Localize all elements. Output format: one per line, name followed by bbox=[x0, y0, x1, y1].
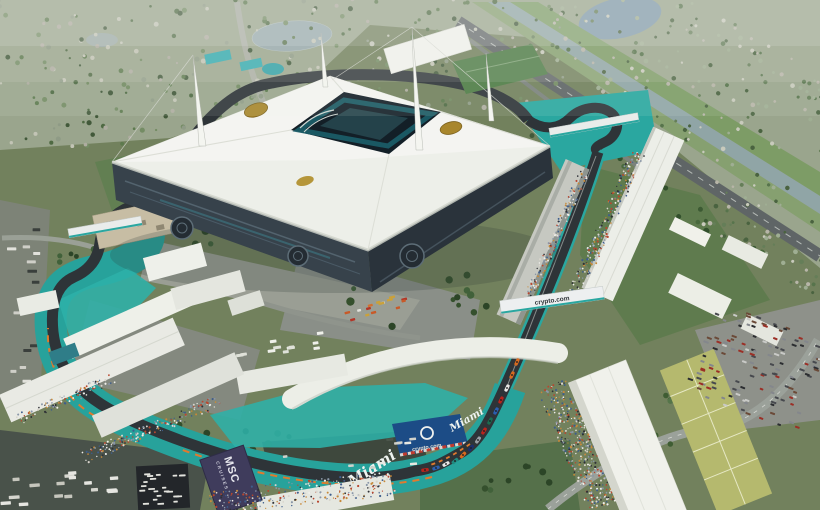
spiral-ramp-west bbox=[171, 217, 193, 239]
spiral-ramp-east bbox=[400, 244, 424, 268]
atmospheric-haze bbox=[0, 0, 820, 116]
aerial-photo: crypto.com Miami Miami bbox=[0, 0, 820, 510]
aerial-photo-miami-gp: crypto.com Miami Miami bbox=[0, 0, 820, 510]
spiral-ramp-south bbox=[288, 246, 308, 266]
